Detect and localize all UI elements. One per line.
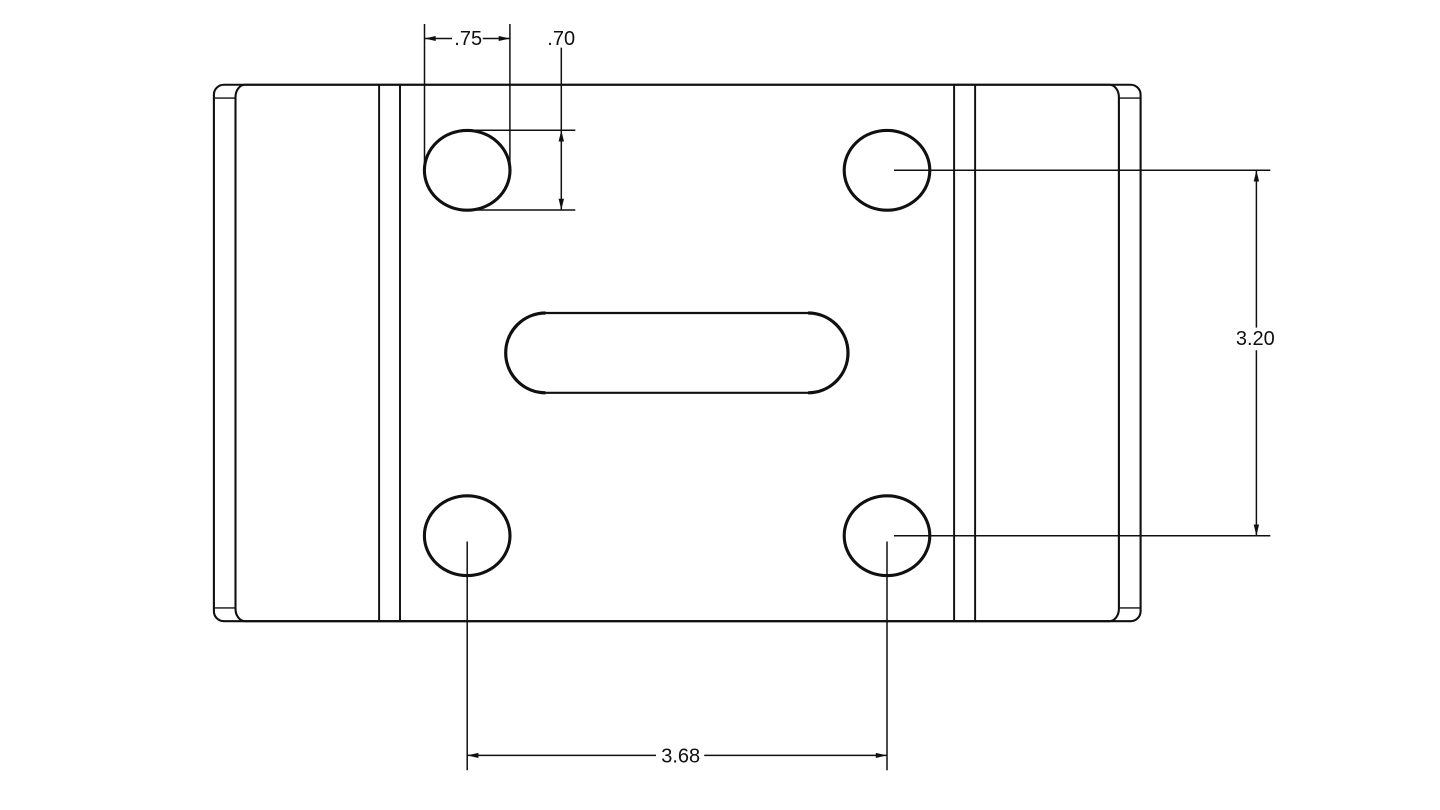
svg-text:.75: .75 — [454, 28, 482, 50]
svg-text:.70: .70 — [547, 28, 575, 50]
svg-text:3.68: 3.68 — [661, 746, 700, 768]
svg-text:3.20: 3.20 — [1236, 328, 1275, 350]
